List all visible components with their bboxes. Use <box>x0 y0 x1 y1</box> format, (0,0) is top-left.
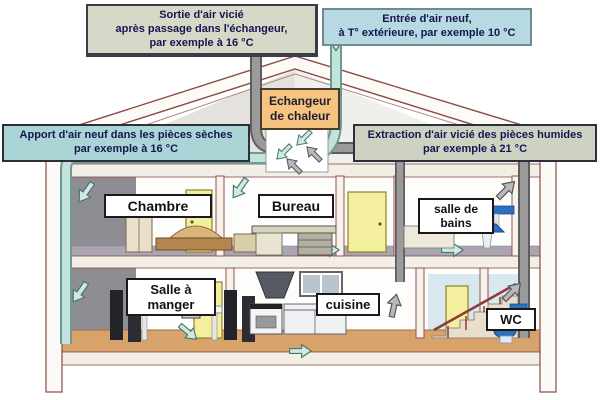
room-label-salle-a-manger: Salle à manger <box>126 278 216 316</box>
door-hallway <box>348 192 386 252</box>
label-fresh-air-in: Entrée d'air neuf, à T° extérieure, par … <box>322 8 532 46</box>
label-exhaust-air-out: Sortie d'air vicié après passage dans l'… <box>86 4 318 57</box>
room-label-chambre: Chambre <box>104 194 212 218</box>
house-ventilation-diagram: Sortie d'air vicié après passage dans l'… <box>0 0 600 400</box>
room-label-salle-de-bains: salle de bains <box>418 198 494 234</box>
label-extraction-humid-rooms: Extraction d'air vicié des pièces humide… <box>353 124 597 162</box>
room-label-bureau: Bureau <box>258 194 334 218</box>
label-supply-dry-rooms: Apport d'air neuf dans les pièces sèches… <box>2 124 250 162</box>
heat-exchange-crossing <box>266 126 328 177</box>
room-label-cuisine: cuisine <box>316 293 380 316</box>
room-label-wc: WC <box>486 308 536 331</box>
label-heat-exchanger: Echangeur de chaleur <box>260 88 340 130</box>
